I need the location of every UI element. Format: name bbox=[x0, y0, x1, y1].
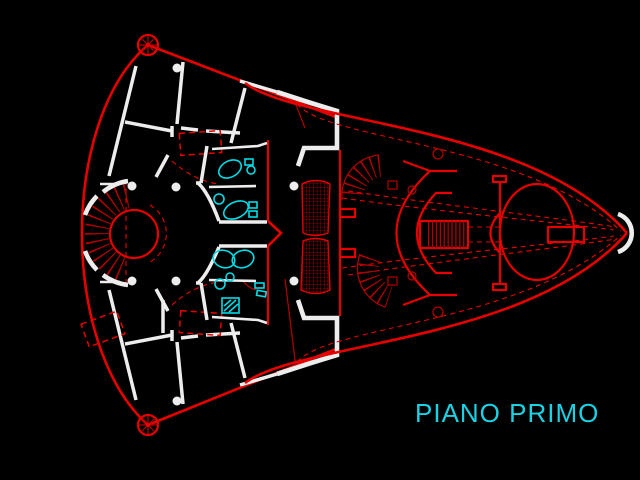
bathroom-fixtures bbox=[211, 156, 266, 313]
round-room bbox=[500, 184, 574, 280]
door-swing-arcs bbox=[172, 161, 261, 305]
hatched-slab-upper bbox=[302, 181, 330, 236]
furniture-dashed bbox=[81, 131, 222, 347]
chevron-wall bbox=[268, 221, 281, 246]
corner-ornament-top bbox=[138, 35, 158, 55]
sink bbox=[257, 290, 267, 296]
fan-stair-top bbox=[342, 155, 397, 200]
round-room-furniture bbox=[548, 227, 584, 242]
hatched-slab-lower bbox=[301, 239, 330, 294]
cad-viewport: PIANO PRIMO bbox=[0, 0, 640, 480]
bow-tip-cap bbox=[618, 214, 632, 252]
room-walls-lower bbox=[109, 289, 277, 404]
spine-tab bbox=[340, 249, 355, 257]
stair-treads bbox=[97, 196, 127, 270]
fan-outer-arc bbox=[82, 45, 148, 425]
sink bbox=[249, 202, 257, 208]
bathtub bbox=[216, 156, 245, 181]
spine-tab bbox=[340, 209, 355, 217]
toilet bbox=[214, 194, 224, 204]
bathtub bbox=[230, 248, 256, 271]
bathroom-block bbox=[196, 143, 267, 323]
central-circular-hall bbox=[85, 140, 299, 325]
west-fan-wing bbox=[81, 35, 336, 435]
pentagon-room-bottom bbox=[277, 300, 337, 374]
floor-title: PIANO PRIMO bbox=[415, 398, 599, 429]
bathtub bbox=[221, 197, 251, 222]
partition-wall bbox=[491, 176, 507, 290]
toilet bbox=[247, 166, 255, 174]
sink bbox=[255, 283, 264, 288]
shower bbox=[222, 298, 239, 313]
column-dots bbox=[128, 182, 299, 286]
spiral-staircase bbox=[85, 181, 128, 285]
pentagon-room-top bbox=[277, 92, 337, 166]
sink bbox=[245, 159, 253, 165]
sink bbox=[249, 211, 257, 217]
stair-outer-wall bbox=[85, 181, 128, 285]
hall-circle bbox=[110, 210, 158, 258]
corner-ornament-bottom bbox=[138, 415, 158, 435]
sight-line-bottom bbox=[285, 279, 296, 368]
